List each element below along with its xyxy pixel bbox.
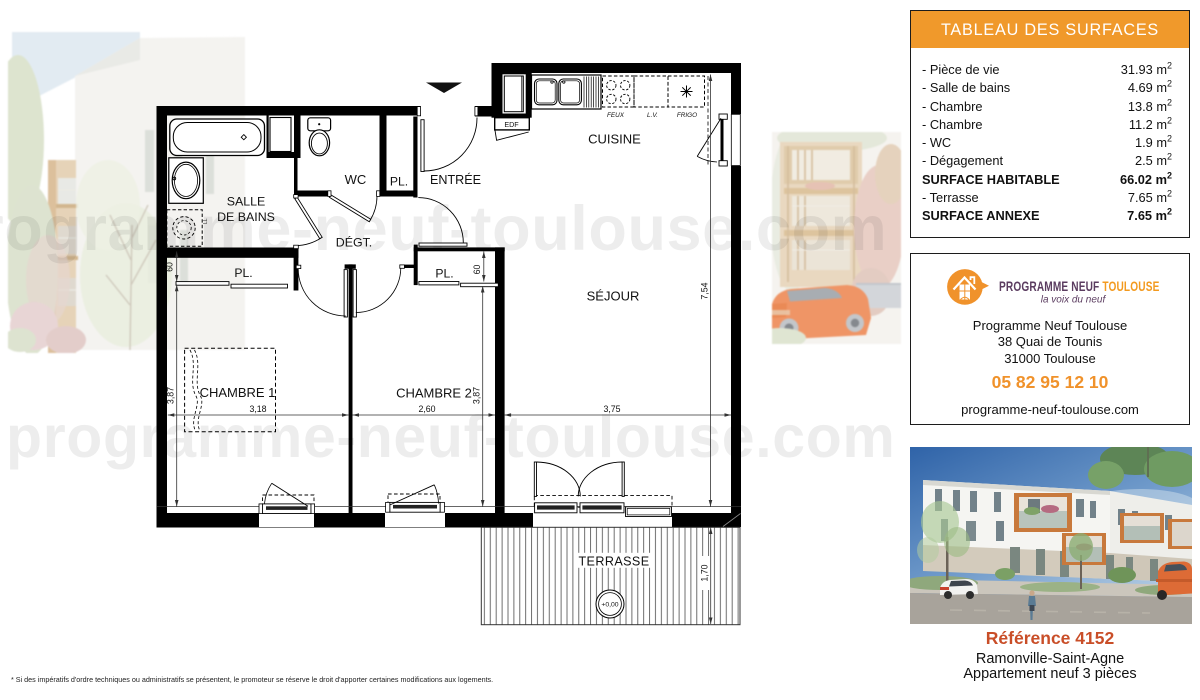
svg-text:3,75: 3,75 [603,404,620,414]
svg-text:PL.: PL. [435,267,453,281]
svg-text:PL.: PL. [390,175,408,189]
svg-text:DE BAINS: DE BAINS [217,210,275,224]
svg-text:3,87: 3,87 [472,387,482,404]
svg-text:2,60: 2,60 [418,404,435,414]
svg-text:60: 60 [472,265,482,275]
svg-text:PROGRAMME NEUF TOULOUSE: PROGRAMME NEUF TOULOUSE [999,279,1160,295]
svg-text:3,87: 3,87 [165,387,175,404]
svg-text:EDF: EDF [504,120,519,129]
svg-text:TERRASSE: TERRASSE [578,555,649,569]
svg-text:CHAMBRE 1: CHAMBRE 1 [200,385,276,400]
svg-text:PL.: PL. [234,266,252,280]
svg-text:la voix du neuf: la voix du neuf [1040,295,1106,306]
svg-text:L.V.: L.V. [647,112,658,119]
svg-text:SALLE: SALLE [227,195,266,209]
svg-text:ENTRÉE: ENTRÉE [430,172,481,187]
svg-text:LL: LL [203,218,209,224]
svg-text:CUISINE: CUISINE [588,132,641,147]
svg-text:3,18: 3,18 [249,404,266,414]
svg-text:FEUX: FEUX [607,112,625,119]
svg-text:WC: WC [345,172,367,187]
svg-text:1,70: 1,70 [700,564,710,581]
svg-text:FRIGO: FRIGO [677,112,697,119]
svg-text:CHAMBRE 2: CHAMBRE 2 [396,386,472,401]
svg-text:+0,00: +0,00 [601,602,618,609]
svg-text:SÉJOUR: SÉJOUR [587,289,640,304]
svg-text:60: 60 [165,262,175,272]
svg-text:DÉGT.: DÉGT. [336,235,373,250]
svg-text:7,54: 7,54 [699,282,709,299]
